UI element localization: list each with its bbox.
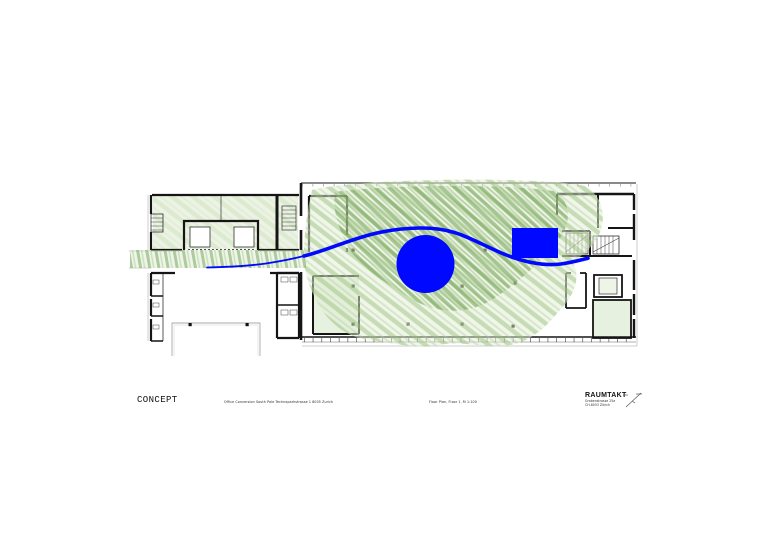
drawing-title: CONCEPT [137,395,178,405]
drawing-info-line: Floor Plan, Floor 1, M 1:100 [429,400,477,404]
concept-circle [397,235,455,293]
lift-room-fill [599,278,617,294]
courtyard [172,323,260,356]
project-info-line: Office Conversion South Pole Technoparks… [224,400,333,404]
lift-shaft-a [190,227,210,247]
lift-shaft-b [234,227,254,247]
scale-mark-icon [621,389,647,411]
right-room-fill [593,300,631,338]
floor-plan-svg [0,0,780,552]
corridor-vegetation-hatch [130,250,306,268]
drawing-sheet: CONCEPT Office Conversion South Pole Tec… [0,0,780,552]
left-wing-lower [148,273,299,341]
concept-rectangle [512,228,558,258]
courtyard-columns [189,323,249,326]
